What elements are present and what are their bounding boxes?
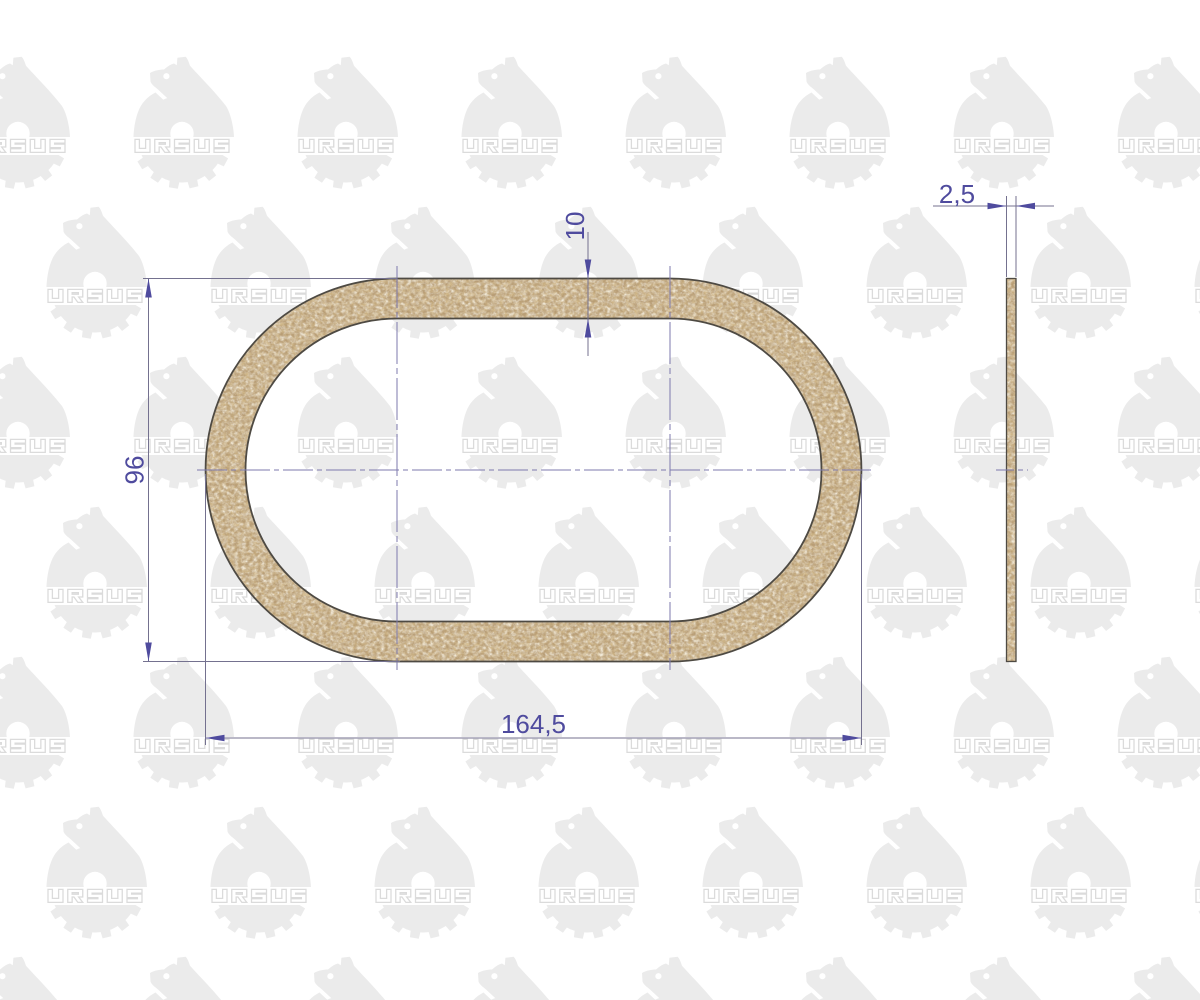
svg-text:2,5: 2,5 [939, 179, 975, 209]
svg-text:10: 10 [560, 212, 590, 241]
svg-text:164,5: 164,5 [501, 709, 566, 739]
svg-text:96: 96 [120, 456, 150, 485]
